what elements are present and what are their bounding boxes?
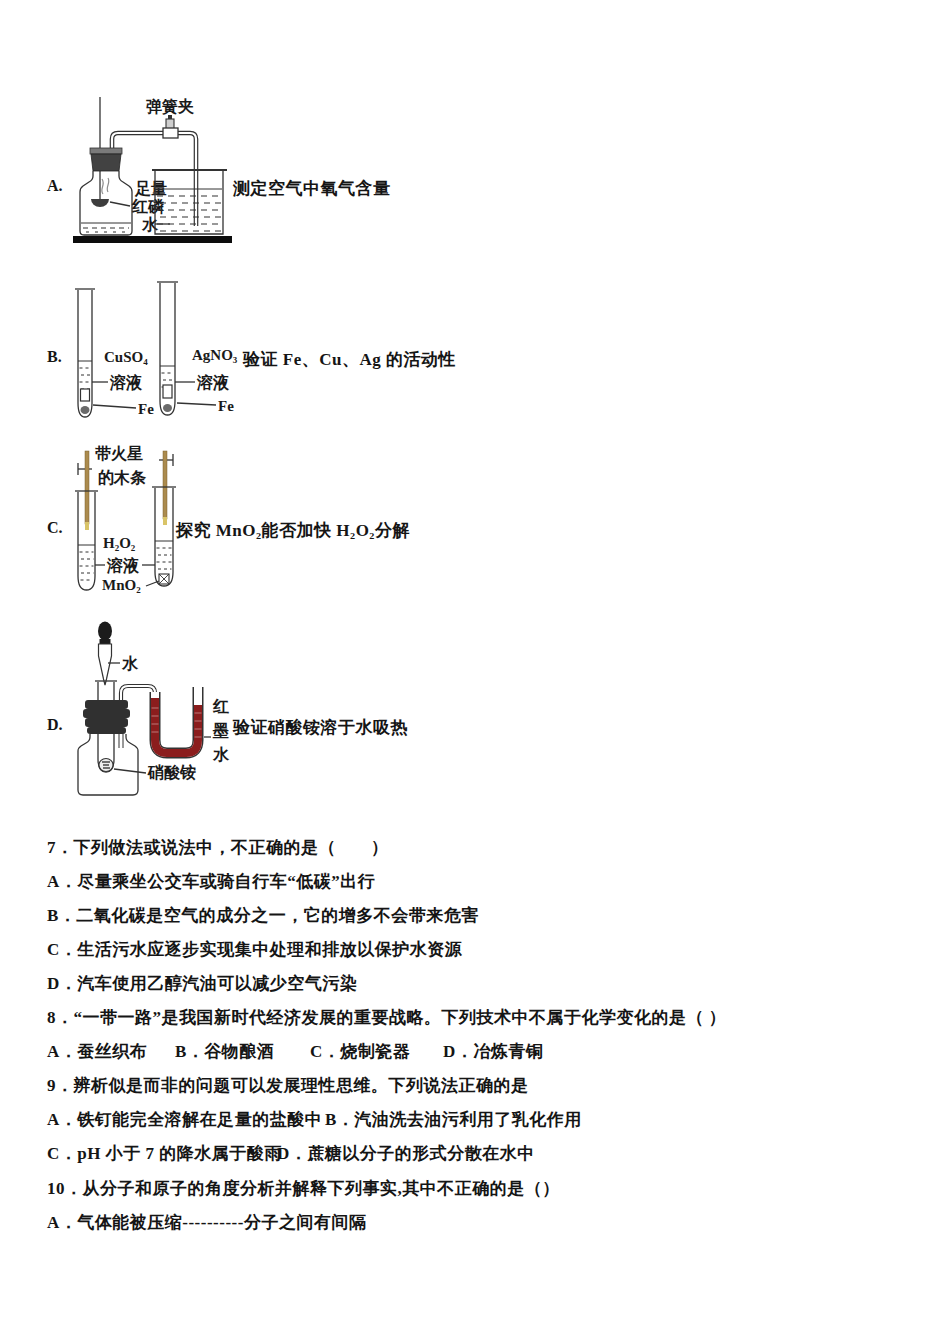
splint-label-1: 带火星 (95, 445, 143, 462)
ammonium-nitrate-lump (99, 759, 113, 772)
label-red-ink-1: 红 (212, 698, 229, 715)
right-liquid-dashes (157, 548, 172, 569)
q7-option-b: B．二氧化碳是空气的成分之一，它的增多不会带来危害 (47, 904, 479, 927)
figure-b-caption: 验证 Fe、Cu、Ag 的活动性 (243, 348, 456, 371)
figure-c-diagram: 带火星 的木条 (60, 438, 176, 598)
q8-stem: 8．“一带一路”是我国新时代经济发展的重要战略。下列技术中不属于化学变化的是（ … (47, 1006, 726, 1029)
left-wood-splint (85, 451, 89, 524)
dropper-icon (98, 622, 112, 686)
q8-option-d: D．冶炼青铜 (443, 1040, 543, 1063)
label-h2o2: H₂O₂ (103, 535, 136, 551)
u-tube-bore (155, 687, 198, 753)
smoke-wisps (102, 178, 109, 194)
figure-c-caption: 探究 MnO₂能否加快 H₂O₂分解 (176, 519, 410, 542)
right-splint-glow-tip (163, 517, 167, 525)
label-agno3-solution: 溶液 (196, 373, 230, 391)
q8-option-a: A．蚕丝织布 (47, 1040, 147, 1063)
figure-b-diagram: CuSO₄ 溶液 AgNO₃ 溶液 Fe Fe (60, 281, 240, 423)
q7-stem: 7．下列做法或说法中，不正确的是（ ） (47, 836, 389, 859)
left-liquid-dashes (80, 368, 91, 389)
stopper-top (90, 148, 122, 154)
q9-option-a: A．铁钉能完全溶解在足量的盐酸中 (47, 1108, 322, 1131)
left-iron-piece (81, 389, 90, 401)
q9-option-c: C．pH 小于 7 的降水属于酸雨 (47, 1142, 282, 1165)
rubber-stopper (91, 154, 121, 171)
ammonium-nitrate-apparatus: 水 (78, 622, 230, 796)
leader-fe-right (177, 403, 216, 405)
figure-a-diagram: 弹簧夹 足量 红磷 水 (60, 93, 232, 251)
right-tube-residue (163, 404, 172, 412)
q10-stem: 10．从分子和原子的角度分析并解释下列事实,其中不正确的是（） (47, 1177, 560, 1200)
q7-option-d: D．汽车使用乙醇汽油可以减少空气污染 (47, 972, 357, 995)
combustion-spoon (91, 199, 109, 207)
neck-stub-tube (119, 734, 123, 748)
h2o2-decomposition-apparatus: 带火星 的木条 (75, 445, 176, 593)
beaker-water-dashes (157, 196, 221, 231)
q7-option-c: C．生活污水应逐步实现集中处理和排放以保护水资源 (47, 938, 462, 961)
leader-mno2 (146, 581, 159, 586)
spring-clamp-icon (163, 115, 178, 138)
q9-stem: 9．辨析似是而非的问题可以发展理性思维。下列说法正确的是 (47, 1074, 529, 1097)
rubber-stopper (83, 700, 130, 734)
leader-fe-left (93, 405, 136, 408)
right-iron-piece (163, 385, 172, 398)
label-water: 水 (121, 655, 139, 672)
label-red-ink-3: 水 (212, 746, 230, 763)
figure-d-caption: 验证硝酸铵溶于水吸热 (233, 716, 408, 739)
q10-option-a: A．气体能被压缩----------分子之间有间隔 (47, 1211, 366, 1234)
right-wood-splint (163, 451, 167, 519)
label-solution: 溶液 (106, 556, 140, 574)
label-salt: 硝酸铵 (147, 764, 196, 781)
label-mno2: MnO₂ (102, 577, 141, 593)
bench-base (73, 236, 232, 243)
spring-clamp-label: 弹簧夹 (146, 98, 195, 115)
q9-option-d: D．蔗糖以分子的形式分散在水中 (277, 1142, 535, 1165)
u-tube-outline (155, 687, 198, 753)
splint-label-2: 的木条 (98, 469, 147, 486)
q8-option-b: B．谷物酿酒 (175, 1040, 274, 1063)
figure-d-diagram: 水 (60, 618, 235, 803)
exam-page: A. 弹簧夹 足量 红磷 (0, 0, 950, 1344)
q8-option-c: C．烧制瓷器 (310, 1040, 410, 1063)
metal-activity-apparatus: CuSO₄ 溶液 AgNO₃ 溶液 Fe Fe (75, 282, 238, 417)
left-splint-glow-tip (85, 522, 89, 530)
leader-honglin (110, 202, 130, 206)
left-tube-residue (81, 406, 90, 414)
label-cuso4-solution: 溶液 (109, 373, 143, 391)
label-cuso4: CuSO₄ (104, 349, 148, 365)
label-red-ink-2: 墨 (212, 722, 229, 739)
label-honglin: 红磷 (131, 198, 165, 215)
label-agno3: AgNO₃ (192, 347, 238, 363)
figure-a-caption: 测定空气中氧气含量 (233, 177, 391, 200)
q9-option-b: B．汽油洗去油污利用了乳化作用 (325, 1108, 582, 1131)
label-fe-right: Fe (218, 398, 234, 414)
left-liquid-dashes (80, 552, 94, 580)
mno2-lump (159, 574, 169, 584)
q7-option-a: A．尽量乘坐公交车或骑自行车“低碳”出行 (47, 870, 375, 893)
oxygen-measure-apparatus: 弹簧夹 足量 红磷 水 (73, 97, 232, 243)
leader-salt (114, 769, 146, 773)
label-fe-left: Fe (138, 401, 154, 417)
red-ink-liquid (155, 698, 198, 753)
